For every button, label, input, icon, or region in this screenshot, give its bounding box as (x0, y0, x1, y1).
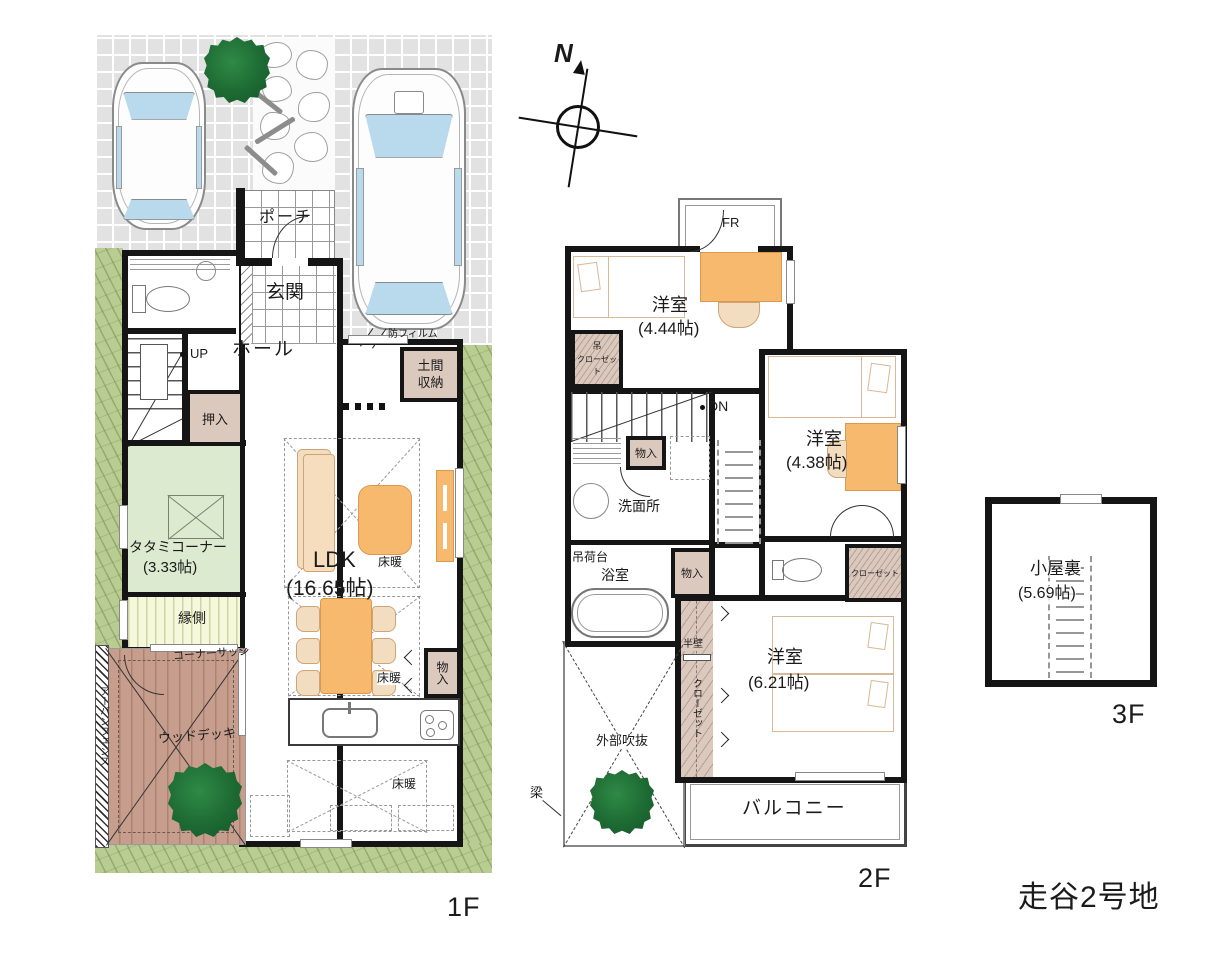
wall (122, 592, 246, 597)
stove-burner (425, 715, 434, 724)
window (897, 426, 906, 484)
car-windshield (123, 92, 195, 120)
tv-board-slit (443, 523, 447, 549)
tatami-label: タタミコーナー (129, 540, 227, 555)
lift-platform-label: 吊荷台 (572, 551, 608, 564)
washroom-counter (573, 438, 621, 466)
beam-leader-line (542, 800, 561, 816)
wall (122, 328, 236, 334)
car-large (352, 68, 466, 330)
bed-pillow (867, 622, 888, 650)
storage-label: 物入 (681, 565, 703, 581)
oshiire-label: 押入 (202, 409, 228, 428)
stove-burner (438, 721, 447, 730)
stairs-rail (140, 344, 168, 400)
ldk-label: LDK (313, 548, 356, 571)
dashed-landing-box (670, 436, 710, 480)
desk (700, 252, 782, 302)
dn-label: DN (708, 399, 728, 414)
kitchen-faucet (348, 702, 351, 714)
balcony-label: バルコニー (742, 799, 847, 819)
floor-heating-label: 床暖 (377, 672, 401, 685)
car-sunroof (394, 91, 425, 114)
oshiire-closet: 押入 (186, 390, 244, 446)
kitchen-stove (420, 710, 454, 740)
shoe-cabinet (241, 266, 253, 344)
dining-table (320, 598, 372, 694)
floor-label-1f: 1F (447, 893, 481, 921)
dashed-box (250, 795, 290, 837)
balcony-door-window (795, 772, 885, 781)
dining-chair (372, 638, 396, 664)
dining-chair (296, 638, 320, 664)
hall-label: ホール (232, 340, 295, 360)
bed-fold-line (608, 257, 609, 317)
doma-label: 土間収納 (417, 358, 443, 391)
grass-right (462, 345, 492, 873)
car-rear-window (365, 282, 453, 316)
floor-label-2f: 2F (858, 864, 892, 892)
dining-chair (372, 606, 396, 632)
room444-label: 洋室 (652, 296, 688, 315)
stepping-stone (294, 132, 328, 162)
tv-board-slit (443, 485, 447, 511)
wall (236, 188, 245, 262)
north-label: N (554, 40, 573, 67)
window (300, 839, 352, 848)
grass-bottom (95, 843, 492, 873)
floor-heating-label: 床暖 (378, 556, 402, 569)
entrance-door-gap (272, 258, 308, 266)
toilet-tank-2f (772, 560, 784, 580)
fr-label: FR (722, 216, 739, 230)
window (1060, 494, 1102, 504)
room438-size-label: (4.38帖) (786, 454, 847, 472)
up-label: UP (190, 347, 208, 361)
up-marker-dot (180, 352, 185, 357)
bathtub-inner (577, 594, 663, 632)
window (455, 468, 464, 558)
void-label: 外部吹抜 (596, 734, 648, 748)
toilet-sink (196, 261, 216, 281)
bed (768, 356, 896, 418)
car-side-window (356, 168, 364, 266)
sliding-rail (343, 403, 391, 410)
dining-chair (296, 670, 320, 696)
genkan-label: 玄関 (266, 283, 304, 303)
washroom-label: 洗面所 (618, 499, 660, 514)
car-windshield (365, 114, 453, 158)
room438-label: 洋室 (806, 430, 842, 449)
hanging-closet-label: 吊クローゼット (575, 340, 619, 378)
compass-circle (556, 105, 600, 149)
car-side-window (454, 168, 462, 266)
dining-chair (296, 606, 320, 632)
bathtub (571, 588, 669, 638)
room621-label: 洋室 (767, 648, 803, 667)
dashed-box (398, 805, 454, 831)
stove-burner (426, 728, 435, 737)
dn-marker-dot (700, 405, 705, 410)
car-side-window (196, 126, 202, 188)
bed-pillow (867, 363, 891, 394)
window (119, 505, 128, 549)
storage-label: 物入 (434, 661, 451, 685)
toilet-bowl-2f (782, 558, 822, 582)
dashed-box (330, 805, 392, 831)
closet-2f: クローゼット (845, 544, 905, 602)
toilet-bowl (146, 286, 190, 312)
attic-ladder (717, 440, 761, 544)
closet-vert-label: クローゼット (690, 678, 701, 738)
attic-label: 小屋裏 (1030, 560, 1081, 578)
tatami-size-label: (3.33帖) (143, 560, 197, 576)
bed-pillow (577, 262, 601, 293)
car-side-window (116, 126, 122, 188)
ldk-size-label: (16.65帖) (286, 578, 374, 600)
window (786, 260, 795, 304)
porch-label: ポーチ (259, 210, 313, 227)
halfwall-label: 半壁 (683, 640, 703, 651)
stepping-stone (296, 50, 328, 80)
storage-1f: 物入 (424, 648, 461, 698)
room444-size-label: (4.44帖) (638, 320, 699, 338)
floor-label-3f: 3F (1112, 700, 1146, 728)
coffee-table (358, 485, 412, 555)
north-arrow (573, 59, 587, 75)
corner-sash-window (238, 652, 246, 736)
storage-2f-mid: 物入 (671, 548, 713, 598)
plan-title: 走谷2号地 (1018, 882, 1160, 914)
desk (845, 423, 901, 491)
floorplan-canvas: ポーチ 玄関 UP ホール 押入 防フィルム 土間収納 タタミコーナー (3.3… (0, 0, 1229, 965)
toilet-tank (132, 285, 146, 313)
tv-board (436, 470, 454, 562)
floor-heating-label: 床暖 (392, 778, 416, 791)
genkan-tile (248, 266, 336, 344)
beam-label: 梁 (530, 786, 543, 800)
bed-fold-line (861, 357, 862, 417)
car-small (112, 62, 206, 230)
film-label: 防フィルム (388, 330, 438, 341)
wall (571, 540, 709, 545)
doma-storage: 土間収納 (400, 347, 461, 402)
closet-label: クローゼット (851, 568, 899, 579)
car-rear-window (123, 199, 195, 220)
bathroom-label: 浴室 (601, 568, 629, 583)
washroom-round-sink (573, 483, 609, 519)
room621-size-label: (6.21帖) (748, 674, 809, 692)
storage-label: 物入 (635, 445, 657, 461)
attic-size-label: (5.69帖) (1018, 586, 1076, 603)
window (119, 600, 128, 640)
bed-pillow (867, 680, 888, 708)
engawa-label: 縁側 (178, 611, 206, 626)
halfwall-bar (683, 654, 711, 661)
hanging-closet: 吊クローゼット (571, 330, 623, 388)
urban-fence-label: アーバンフェンス (97, 686, 108, 766)
storage-2f-upper: 物入 (626, 436, 666, 470)
